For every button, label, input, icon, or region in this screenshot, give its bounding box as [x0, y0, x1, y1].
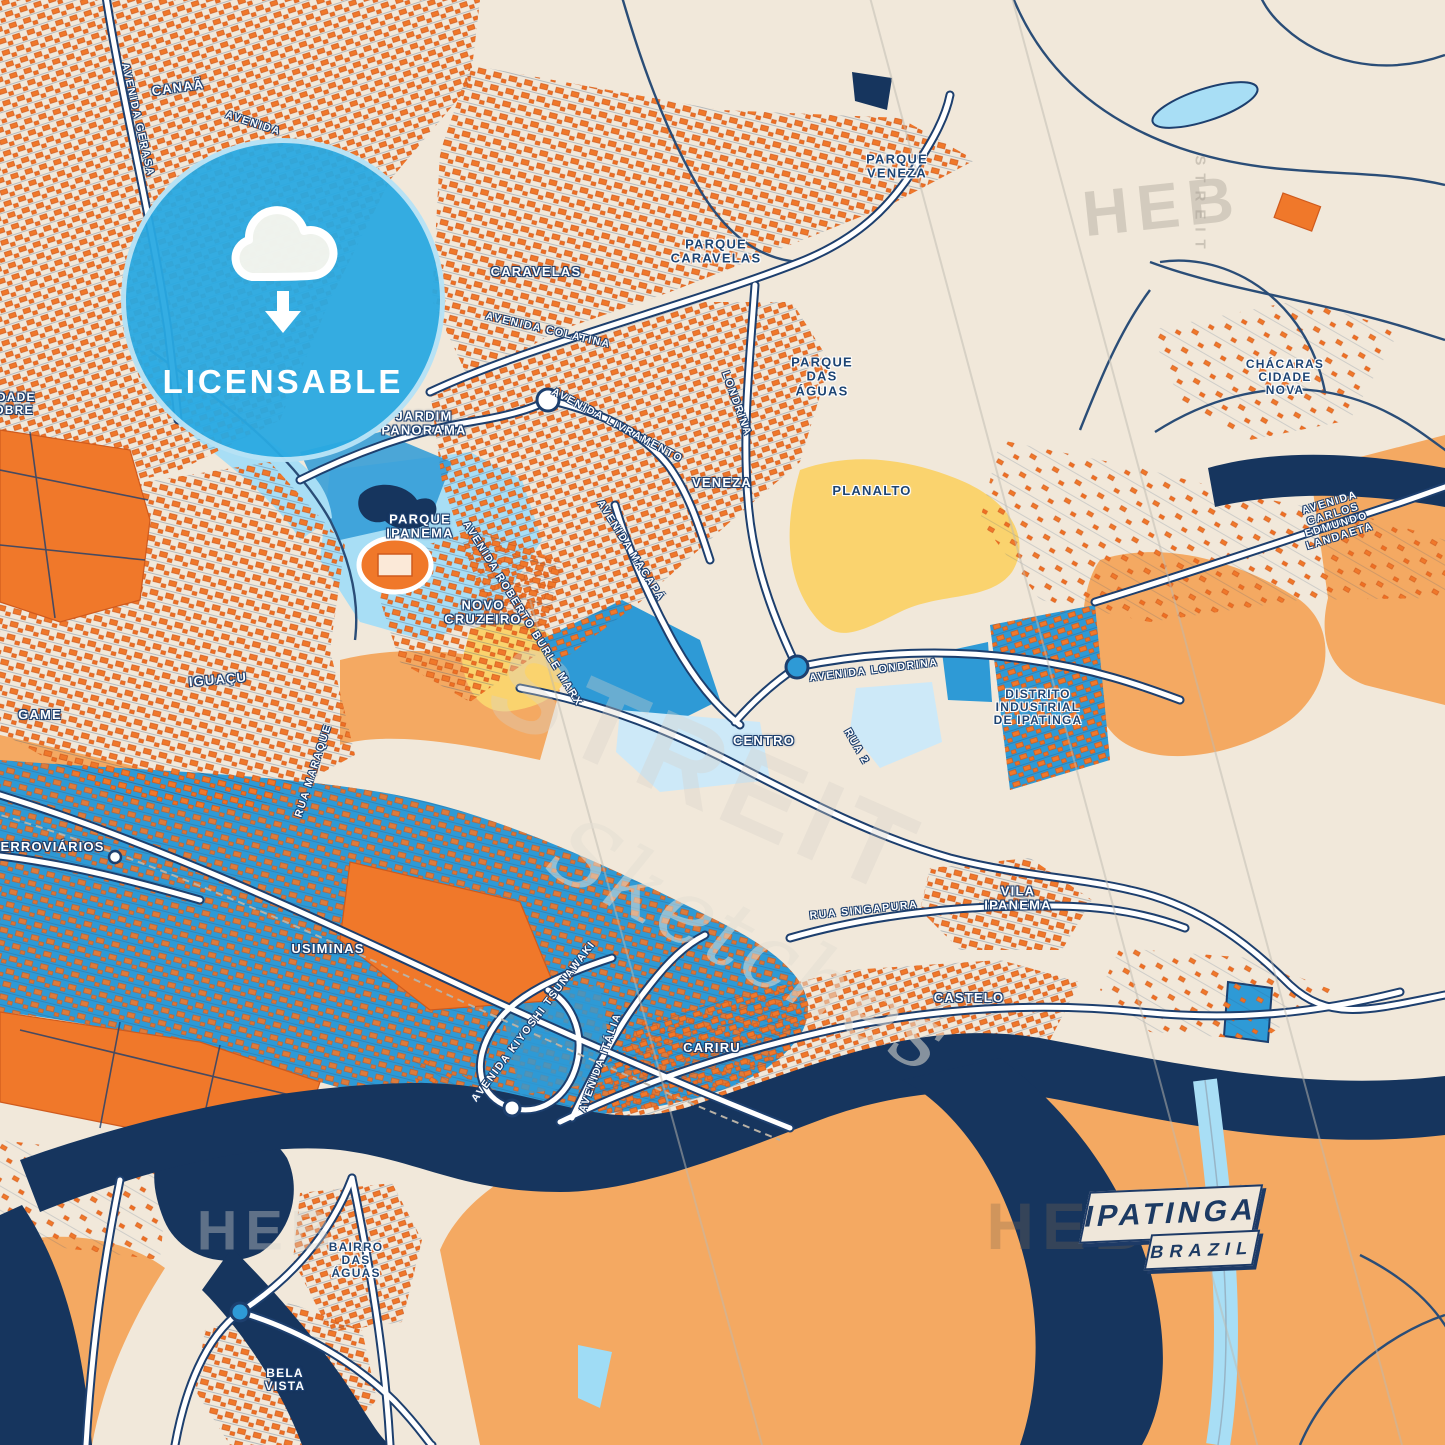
map-poster: HEBSTREITSTREITSketchesHEBSTREIHEB CANAÃ… — [0, 0, 1445, 1445]
city-name: IPATINGA — [1081, 1193, 1261, 1234]
cloud-download-icon — [208, 199, 358, 349]
stadium — [359, 538, 431, 592]
country-name: BRAZIL — [1148, 1237, 1255, 1262]
badge-label: LICENSABLE — [163, 363, 404, 401]
title-country-box: BRAZIL — [1144, 1230, 1260, 1271]
licensable-badge[interactable]: LICENSABLE — [121, 138, 445, 462]
